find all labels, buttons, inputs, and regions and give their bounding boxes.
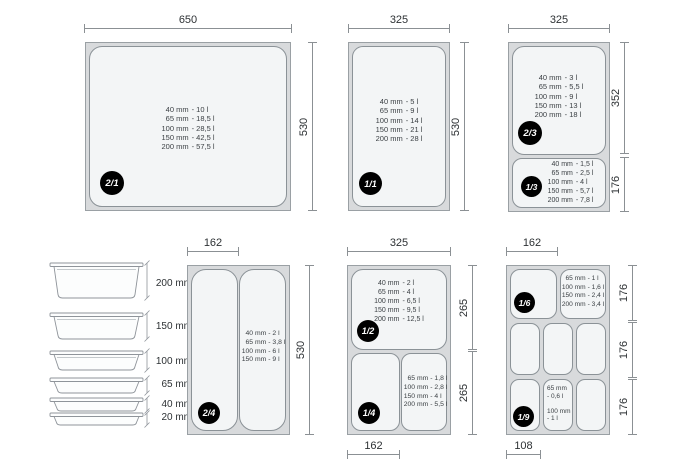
- stack-pan-150mm: [50, 311, 150, 342]
- capacity-table-1-3: 40 mm- 1,5 l 65 mm- 2,5 l 100 mm- 4 l 15…: [535, 160, 606, 205]
- dim-height-row2-label: 176: [618, 341, 630, 359]
- dim-height-row1: 176: [615, 265, 633, 321]
- badge-2-1: 2/1: [100, 171, 124, 195]
- capacity-table-2-4: 40 mm- 2 l 65 mm- 3,8 l 100 mm- 6 l 150 …: [241, 330, 286, 365]
- dim-width-2-4: 162: [187, 236, 239, 252]
- badge-1-3: 1/3: [521, 176, 542, 197]
- dim-width-1-9: 108: [506, 439, 541, 455]
- badge-2-3: 2/3: [518, 121, 542, 145]
- dim-height-row1-label: 176: [618, 284, 630, 302]
- pan-2-4: 40 mm- 2 l 65 mm- 3,8 l 100 mm- 6 l 150 …: [187, 265, 290, 435]
- dim-height-2-4: 530: [292, 265, 310, 435]
- pan-1-1: 40 mm- 5 l 65 mm- 9 l 100 mm- 14 l 150 m…: [348, 42, 450, 211]
- dim-height-row3: 176: [615, 379, 633, 435]
- dim-width-2-1-label: 650: [84, 14, 292, 26]
- dim-width-2-4-label: 162: [187, 237, 239, 249]
- pan-1-9-basin: [576, 379, 606, 431]
- pan-1-9-basin: [543, 323, 573, 375]
- capacity-table-1-4: 65 mm- 1,8 l 100 mm- 2,8 l 150 mm- 4 l 2…: [403, 375, 448, 410]
- badge-2-4: 2/4: [198, 402, 220, 424]
- depth-label-40: 40 mm: [146, 399, 192, 410]
- dim-height-2-4-label: 530: [295, 341, 307, 359]
- dim-height-2-1-label: 530: [298, 117, 310, 135]
- depth-label-200: 200 mm: [146, 278, 192, 289]
- capacity-table-1-1: 40 mm- 5 l 65 mm- 9 l 100 mm- 14 l 150 m…: [376, 97, 423, 143]
- dim-height-2-1: 530: [295, 42, 313, 211]
- depth-label-20: 20 mm: [146, 412, 192, 423]
- capacity-table-2-1: 40 mm- 10 l 65 mm- 18,5 l 100 mm- 28,5 l…: [161, 105, 214, 151]
- dim-width-2-3-label: 325: [508, 14, 610, 26]
- capacity-table-1-9: 65 mm - 0,6 l 100 mm - 1 l: [545, 385, 574, 423]
- pan-1-9-basin: [576, 323, 606, 375]
- dim-height-1-1-label: 530: [450, 117, 462, 135]
- dim-height-row3-label: 176: [618, 398, 630, 416]
- dim-height-1-2-label: 265: [458, 298, 470, 316]
- stack-pan-65mm: [50, 376, 150, 396]
- badge-1-6: 1/6: [514, 292, 535, 313]
- capacity-table-1-2: 40 mm- 2 l 65 mm- 4 l 100 mm- 6,5 l 150 …: [374, 279, 424, 324]
- dim-height-1-2: 265: [455, 265, 473, 350]
- badge-1-1: 1/1: [359, 172, 382, 195]
- dim-width-1-4: 162: [347, 439, 400, 455]
- dim-height-1-4: 265: [455, 351, 473, 435]
- pan-2-3-1-3: 40 mm- 3 l 65 mm- 5,5 l 100 mm- 9 l 150 …: [508, 42, 610, 212]
- capacity-table-2-3: 40 mm- 3 l 65 mm- 5,5 l 100 mm- 9 l 150 …: [535, 73, 584, 119]
- stack-pan-200mm: [50, 261, 150, 301]
- pan-2-1: 40 mm- 10 l 65 mm- 18,5 l 100 mm- 28,5 l…: [85, 42, 291, 211]
- capacity-table-1-6: 65 mm- 1 l 100 mm- 1,6 l 150 mm- 2,4 l 2…: [560, 275, 606, 309]
- pan-1-9-basin: [510, 323, 540, 375]
- depth-label-150: 150 mm: [146, 321, 192, 332]
- badge-1-9: 1/9: [513, 406, 534, 427]
- pan-1-6-1-9: 1/6 65 mm- 1 l 100 mm- 1,6 l 150 mm- 2,4…: [506, 265, 610, 435]
- dim-width-1-2: 325: [347, 236, 451, 252]
- pan-1-2-1-4: 40 mm- 2 l 65 mm- 4 l 100 mm- 6,5 l 150 …: [347, 265, 451, 435]
- badge-1-4: 1/4: [358, 402, 380, 424]
- dim-height-2-3-label: 352: [610, 89, 622, 107]
- stack-pan-100mm: [50, 349, 150, 373]
- dim-height-1-4-label: 265: [458, 384, 470, 402]
- dim-width-1-9-label: 108: [506, 440, 541, 452]
- dim-width-1-1-label: 325: [348, 14, 450, 26]
- dim-width-1-6: 162: [506, 236, 558, 252]
- dim-width-1-1: 325: [348, 13, 450, 29]
- depth-label-100: 100 mm: [146, 356, 192, 367]
- dim-height-1-3-label: 176: [610, 175, 622, 193]
- dim-width-1-2-label: 325: [347, 237, 451, 249]
- dim-height-row2: 176: [615, 322, 633, 378]
- gastronorm-size-diagram: 650 530 40 mm- 10 l 65 mm- 18,5 l 100 mm…: [0, 0, 680, 474]
- badge-1-2: 1/2: [357, 320, 379, 342]
- depth-label-65: 65 mm: [146, 379, 192, 390]
- stack-pan-40mm: [50, 396, 150, 414]
- stack-illustration: [40, 252, 158, 432]
- dim-width-2-1: 650: [84, 13, 292, 29]
- dim-width-1-4-label: 162: [347, 440, 400, 452]
- stack-pan-20mm: [50, 411, 150, 428]
- dim-width-1-6-label: 162: [506, 237, 558, 249]
- dim-width-2-3: 325: [508, 13, 610, 29]
